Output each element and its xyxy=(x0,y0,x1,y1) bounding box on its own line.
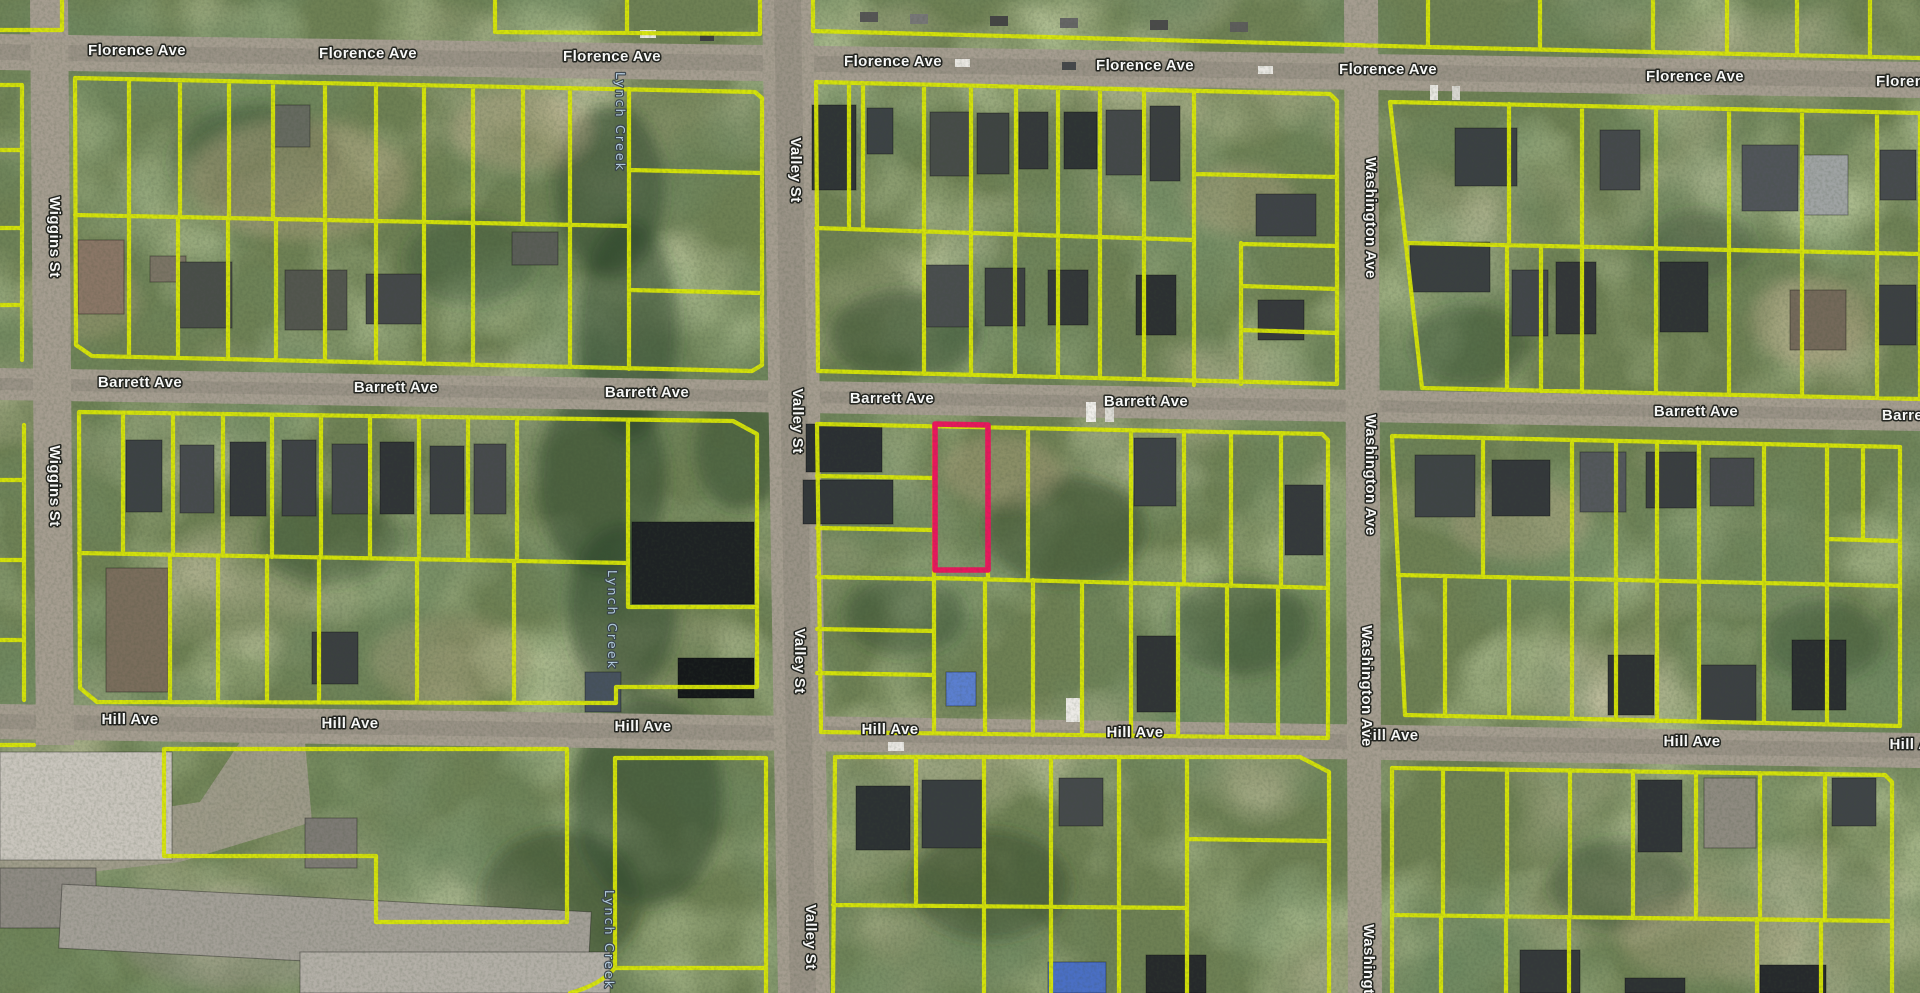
street-label-barrett-ave: Barrett Ave xyxy=(1104,393,1188,410)
street-label-barrett-ave: Barrett Ave xyxy=(1654,403,1738,420)
street-label-barrett-ave: Barrett Ave xyxy=(1882,407,1920,424)
street-label-florence-ave: Florence Ave xyxy=(844,53,942,70)
street-label-barrett-ave: Barrett Ave xyxy=(98,374,182,391)
street-label-florence-ave: Florence Ave xyxy=(319,45,417,62)
street-label-hill-ave: Hill Ave xyxy=(861,721,918,738)
street-label-valley-st: Valley St xyxy=(791,628,808,693)
street-label-wiggins-st: Wiggins St xyxy=(46,445,63,526)
street-label-florence-ave: Florence Ave xyxy=(1339,61,1437,78)
street-label-florence-ave: Florence Ave xyxy=(1876,73,1920,90)
street-label-valley-st: Valley St xyxy=(802,904,819,969)
street-label-hill-ave: Hill Ave xyxy=(1889,736,1920,753)
street-label-florence-ave: Florence Ave xyxy=(1646,68,1744,85)
street-label-florence-ave: Florence Ave xyxy=(563,48,661,65)
street-label-hill-ave: Hill Ave xyxy=(321,715,378,732)
street-label-barrett-ave: Barrett Ave xyxy=(605,384,689,401)
water-label-lynch-creek: Lynch Creek xyxy=(613,72,628,172)
street-label-wiggins-st: Wiggins St xyxy=(46,196,63,277)
street-label-washington-ave: Washington Ave xyxy=(1358,625,1375,746)
street-label-washington-ave: Washington Ave xyxy=(1360,924,1377,993)
street-label-valley-st: Valley St xyxy=(789,388,806,453)
street-label-hill-ave: Hill Ave xyxy=(101,711,158,728)
street-label-washington-ave: Washington Ave xyxy=(1362,414,1379,535)
water-label-lynch-creek: Lynch Creek xyxy=(605,570,620,670)
street-label-hill-ave: Hill Ave xyxy=(1663,733,1720,750)
street-label-hill-ave: Hill Ave xyxy=(1106,724,1163,741)
road-wiggins-st xyxy=(30,0,74,745)
water-label-lynch-creek: Lynch Creek xyxy=(602,890,617,990)
street-label-barrett-ave: Barrett Ave xyxy=(850,390,934,407)
street-label-valley-st: Valley St xyxy=(787,137,804,202)
street-label-florence-ave: Florence Ave xyxy=(88,42,186,59)
street-label-florence-ave: Florence Ave xyxy=(1096,57,1194,74)
map-canvas[interactable]: Florence Ave Florence Ave Florence Ave F… xyxy=(0,0,1920,993)
street-label-washington-ave: Washington Ave xyxy=(1362,157,1379,278)
street-label-barrett-ave: Barrett Ave xyxy=(354,379,438,396)
street-label-hill-ave: Hill Ave xyxy=(614,718,671,735)
